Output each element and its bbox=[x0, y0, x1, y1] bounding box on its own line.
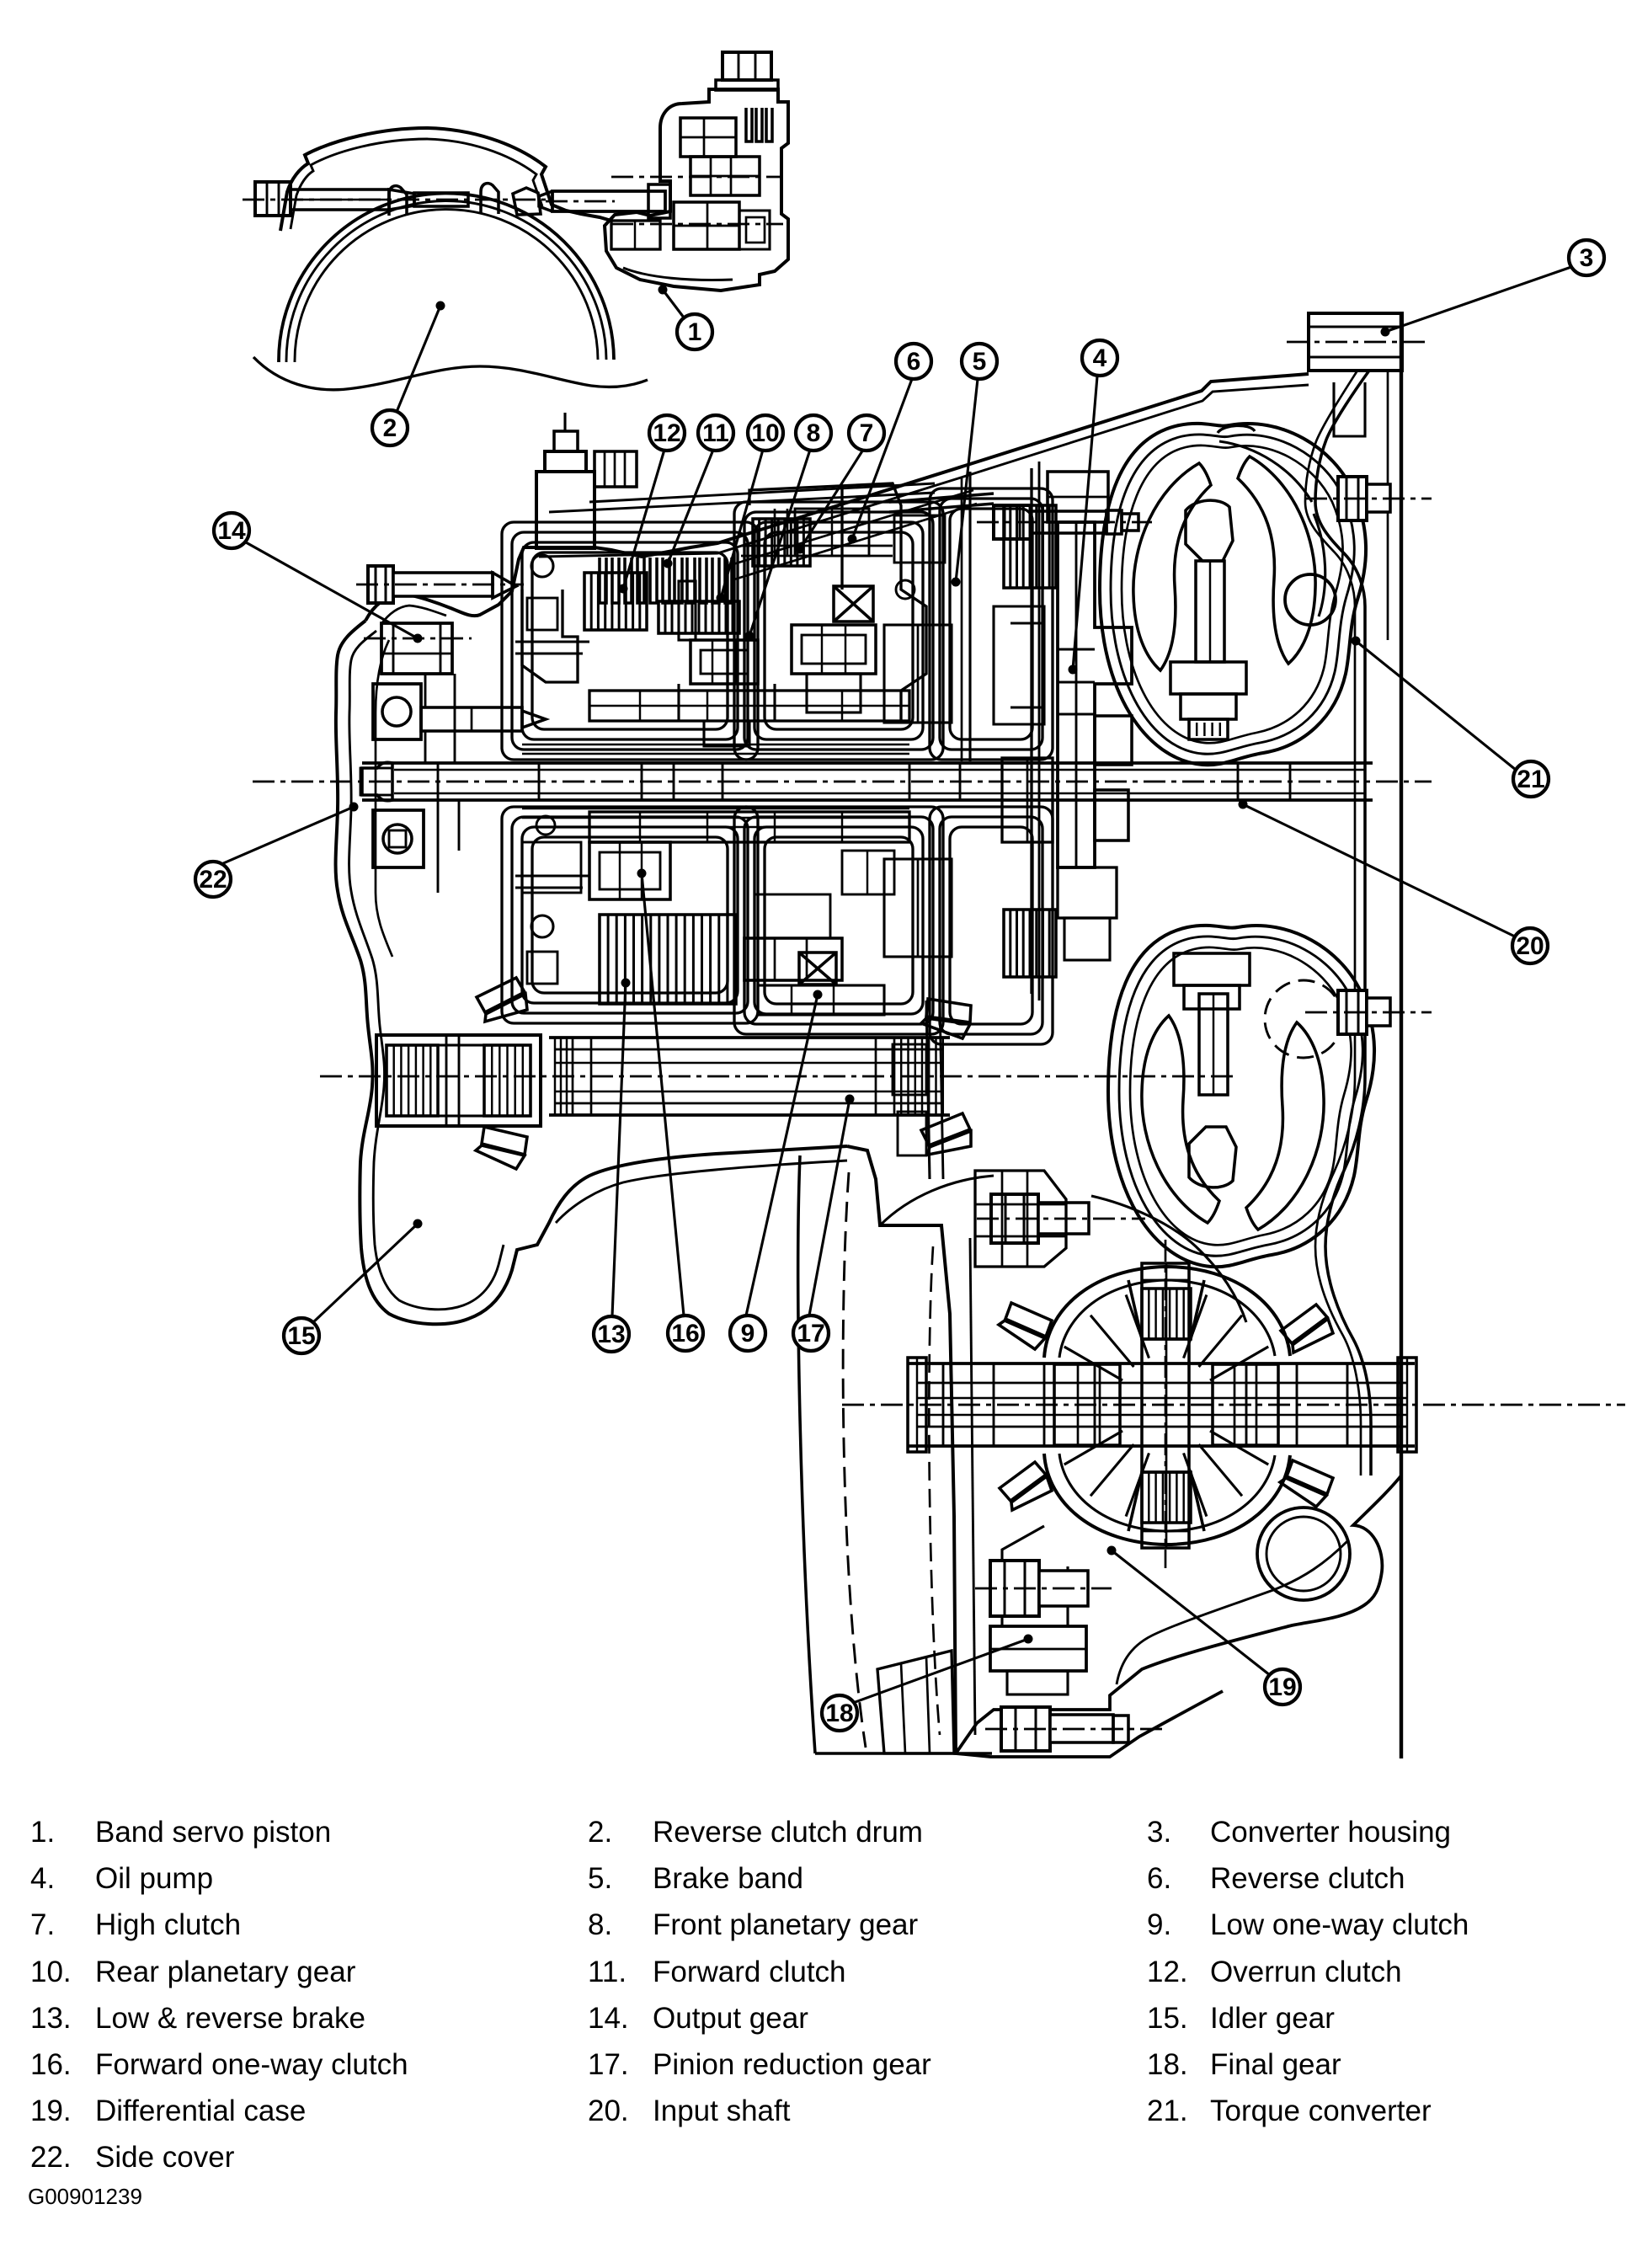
svg-text:22: 22 bbox=[199, 866, 227, 894]
svg-text:Side cover: Side cover bbox=[95, 2141, 235, 2174]
svg-text:10: 10 bbox=[751, 419, 779, 447]
svg-text:17: 17 bbox=[797, 1320, 824, 1347]
svg-text:6.: 6. bbox=[1147, 1862, 1171, 1895]
svg-text:13: 13 bbox=[597, 1321, 625, 1348]
svg-text:22.: 22. bbox=[30, 2141, 72, 2174]
svg-text:8.: 8. bbox=[588, 1908, 612, 1941]
svg-text:High clutch: High clutch bbox=[95, 1908, 241, 1941]
svg-text:Output gear: Output gear bbox=[653, 2002, 808, 2035]
svg-text:Reverse clutch: Reverse clutch bbox=[1210, 1862, 1405, 1895]
svg-text:10.: 10. bbox=[30, 1956, 72, 1988]
svg-text:4: 4 bbox=[1093, 344, 1107, 372]
svg-text:2.: 2. bbox=[588, 1816, 612, 1849]
svg-text:12.: 12. bbox=[1147, 1956, 1188, 1988]
svg-text:15.: 15. bbox=[1147, 2002, 1188, 2035]
svg-text:11.: 11. bbox=[588, 1956, 627, 1988]
svg-text:14: 14 bbox=[217, 517, 246, 545]
svg-text:Forward one-way clutch: Forward one-way clutch bbox=[95, 2048, 408, 2081]
svg-text:Band servo piston: Band servo piston bbox=[95, 1816, 331, 1849]
svg-text:14.: 14. bbox=[588, 2002, 629, 2035]
svg-text:7.: 7. bbox=[30, 1908, 55, 1941]
svg-text:16: 16 bbox=[671, 1320, 699, 1347]
svg-text:6: 6 bbox=[907, 348, 921, 376]
svg-text:Pinion reduction gear: Pinion reduction gear bbox=[653, 2048, 931, 2081]
svg-text:18.: 18. bbox=[1147, 2048, 1188, 2081]
svg-text:11: 11 bbox=[702, 419, 729, 447]
svg-text:19: 19 bbox=[1268, 1673, 1296, 1701]
svg-text:7: 7 bbox=[860, 419, 874, 447]
svg-text:3.: 3. bbox=[1147, 1816, 1171, 1849]
svg-text:20: 20 bbox=[1516, 932, 1544, 960]
svg-text:Differential case: Differential case bbox=[95, 2095, 306, 2127]
svg-text:1.: 1. bbox=[30, 1816, 55, 1849]
svg-text:Forward clutch: Forward clutch bbox=[653, 1956, 846, 1988]
svg-text:17.: 17. bbox=[588, 2048, 629, 2081]
svg-text:3: 3 bbox=[1580, 244, 1594, 272]
svg-text:5: 5 bbox=[973, 348, 987, 376]
svg-text:9.: 9. bbox=[1147, 1908, 1171, 1941]
svg-text:5.: 5. bbox=[588, 1862, 612, 1895]
svg-text:Low & reverse brake: Low & reverse brake bbox=[95, 2002, 365, 2035]
svg-text:Input shaft: Input shaft bbox=[653, 2095, 791, 2127]
svg-text:20.: 20. bbox=[588, 2095, 629, 2127]
svg-text:8: 8 bbox=[807, 419, 821, 447]
svg-text:G00901239: G00901239 bbox=[28, 2184, 142, 2209]
svg-text:Oil pump: Oil pump bbox=[95, 1862, 213, 1895]
svg-text:Converter housing: Converter housing bbox=[1210, 1816, 1451, 1849]
svg-text:13.: 13. bbox=[30, 2002, 72, 2035]
svg-text:19.: 19. bbox=[30, 2095, 72, 2127]
svg-text:Overrun clutch: Overrun clutch bbox=[1210, 1956, 1402, 1988]
svg-text:Front planetary gear: Front planetary gear bbox=[653, 1908, 919, 1941]
svg-text:Idler gear: Idler gear bbox=[1210, 2002, 1335, 2035]
svg-text:Rear planetary gear: Rear planetary gear bbox=[95, 1956, 356, 1988]
svg-text:15: 15 bbox=[287, 1322, 315, 1350]
svg-text:Low one-way clutch: Low one-way clutch bbox=[1210, 1908, 1469, 1941]
svg-text:4.: 4. bbox=[30, 1862, 55, 1895]
svg-text:18: 18 bbox=[825, 1700, 853, 1727]
svg-text:Brake band: Brake band bbox=[653, 1862, 803, 1895]
svg-text:21: 21 bbox=[1517, 766, 1544, 793]
svg-text:12: 12 bbox=[653, 419, 680, 447]
svg-text:1: 1 bbox=[688, 318, 702, 346]
svg-text:Reverse clutch drum: Reverse clutch drum bbox=[653, 1816, 923, 1849]
svg-text:16.: 16. bbox=[30, 2048, 72, 2081]
svg-text:Final gear: Final gear bbox=[1210, 2048, 1341, 2081]
svg-text:Torque converter: Torque converter bbox=[1210, 2095, 1432, 2127]
svg-text:21.: 21. bbox=[1147, 2095, 1188, 2127]
svg-text:2: 2 bbox=[383, 414, 397, 442]
svg-text:9: 9 bbox=[741, 1320, 755, 1347]
